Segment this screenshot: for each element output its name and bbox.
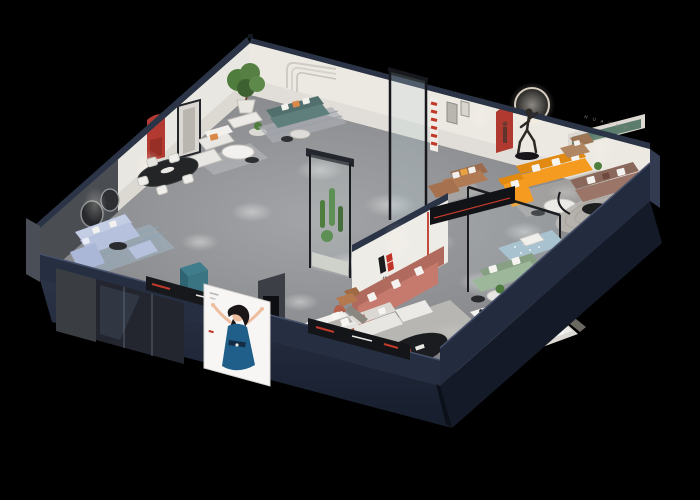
tree-pot (237, 100, 255, 113)
niche-figurine-head (503, 122, 508, 127)
woman-hand (211, 303, 215, 307)
wall-glow (83, 187, 107, 223)
light-pool (181, 233, 219, 251)
plant-bush (321, 230, 333, 242)
woman-hand (260, 307, 264, 311)
round-table (290, 130, 310, 139)
roof-detail (248, 34, 253, 38)
black-coffee-table (109, 242, 127, 250)
facade-gray-panel (56, 268, 96, 342)
render-canvas: H U A Y U E (0, 0, 700, 500)
cactus (329, 188, 335, 226)
light-pool (281, 293, 319, 311)
niche-figurine (503, 127, 507, 143)
light-pool (231, 202, 273, 222)
glass-panel (390, 70, 426, 232)
floorplan-render: H U A Y U E (0, 0, 700, 500)
coffee-table (222, 145, 254, 159)
wall-art-frame (447, 102, 457, 124)
doorway-inner (183, 107, 195, 154)
plant (594, 162, 602, 170)
round-table-small (281, 136, 293, 142)
cactus (320, 200, 325, 228)
front-poster (204, 284, 270, 386)
sculpture-head (526, 109, 533, 116)
side-table (245, 157, 259, 163)
cactus (338, 206, 343, 232)
belt-buckle (235, 343, 238, 346)
tree-foliage (249, 76, 265, 92)
west-corner-exterior-wedge (26, 218, 40, 282)
dark-stool (471, 296, 485, 303)
east-corner-cap (650, 149, 660, 208)
sculpture-base (515, 152, 539, 160)
